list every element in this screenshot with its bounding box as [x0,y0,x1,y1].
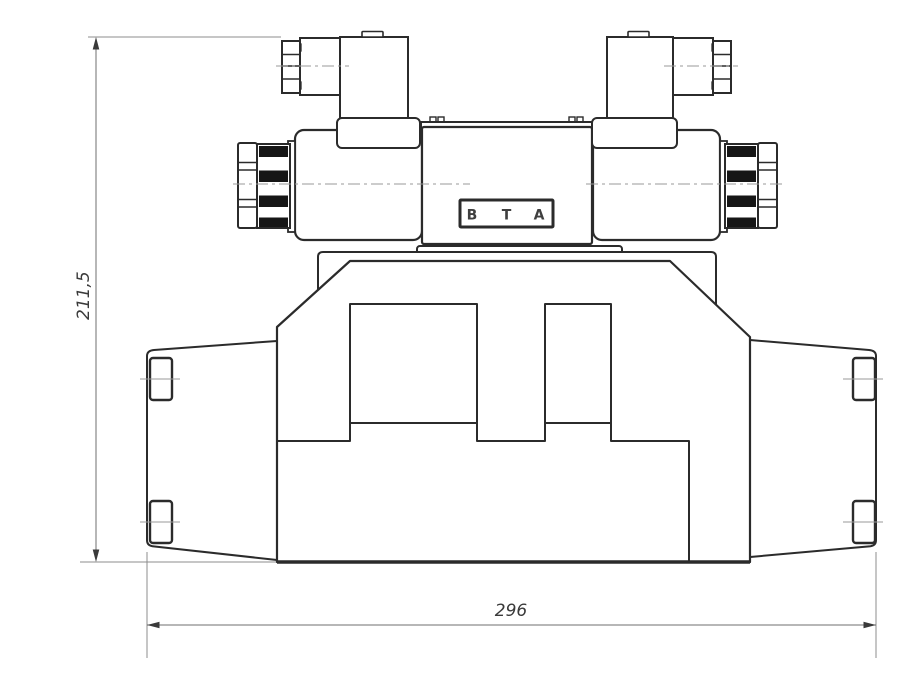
connector-block-right [607,37,673,118]
width-dimension-label: 296 [495,601,528,621]
knurl-rib [727,146,756,157]
terminal-pedestal-left [337,118,420,148]
knurl-rib [727,218,756,228]
port-label-t: T [502,208,512,224]
terminal-pedestal-right [592,118,677,148]
end-cap-left [238,143,257,228]
arrowhead-down [93,550,100,563]
knurl-rib [259,171,288,183]
knurl-rib [727,171,756,183]
arrowhead-left [147,622,160,629]
gland-nut-right [713,41,731,93]
end-cap-right [758,143,777,228]
knurl-rib [259,218,288,228]
arrowhead-up [93,37,100,50]
connector-screw-left [362,32,383,38]
height-dimension-label: 211,5 [74,271,94,320]
arrowhead-right [864,622,877,629]
main-body [277,261,750,562]
port-label-b: B [467,208,478,224]
port-label-a: A [534,208,545,224]
connector-block-left [340,37,408,118]
knurl-rib [259,196,288,208]
knurl-rib [259,146,288,157]
connector-screw-right [628,32,649,38]
valve-front-view-drawing: 211,5 296 [0,0,916,678]
technical-drawing-canvas: 211,5 296 [0,0,916,678]
valve-center-section [421,117,592,244]
knurl-rib [727,196,756,208]
gland-nut-left [282,41,300,93]
